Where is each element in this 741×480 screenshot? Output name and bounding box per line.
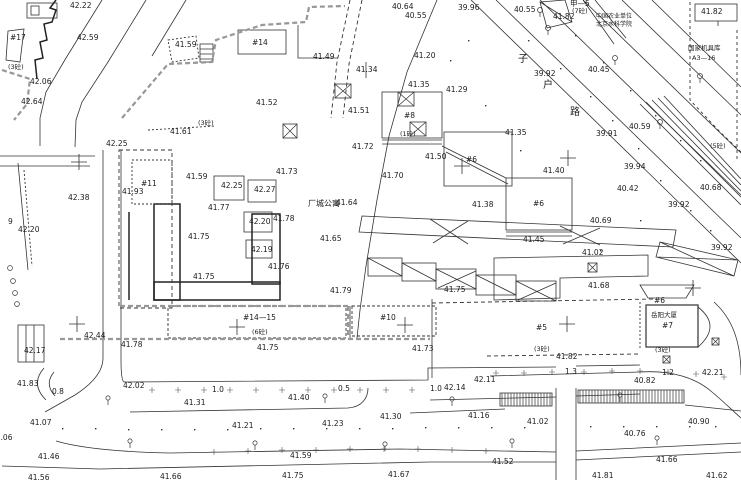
spot-elevation: 41.76 [268, 263, 289, 271]
point-dot-icon [590, 426, 591, 427]
spot-elevation: 41.66 [160, 473, 181, 480]
storey-note: (1砼) [400, 131, 416, 138]
spot-elevation: 39.94 [624, 163, 645, 171]
spot-elevation: 39.96 [458, 4, 479, 12]
spot-elevation: 41.59 [186, 173, 207, 181]
spot-elevation: 39.92 [668, 201, 689, 209]
storey-note: (3砼) [198, 120, 214, 127]
place-name: 国家机具库 [688, 45, 721, 52]
road-tick-icon [581, 369, 587, 375]
point-dot-icon [689, 426, 690, 427]
point-dot-icon [425, 427, 426, 428]
point-dot-icon [392, 428, 393, 429]
culvert-icon [335, 84, 351, 98]
spot-elevation: 41.75 [257, 344, 278, 352]
place-name: 北京水科学院 [596, 22, 632, 28]
spot-elevation: 41.34 [356, 66, 377, 74]
road-width: 1.3 [565, 368, 577, 376]
point-dot-icon [520, 150, 521, 151]
spot-elevation: 41.40 [288, 394, 309, 402]
place-name: 厂城公寓 [308, 200, 340, 208]
lamp-icon [106, 396, 110, 400]
point-dot-icon [590, 96, 591, 97]
road-tick-icon [357, 387, 363, 393]
survey-cross-icon [685, 280, 701, 296]
point-dot-icon [638, 148, 639, 149]
spot-elevation: 41.31 [184, 399, 205, 407]
storey-note: (3砼) [655, 347, 671, 354]
survey-cross-icon [397, 317, 413, 333]
road-tick-icon [449, 447, 455, 453]
spot-elevation: 41.73 [276, 168, 297, 176]
spot-elevation: 42.19 [251, 246, 272, 254]
building-number: #5 [536, 324, 547, 332]
point-dot-icon [293, 428, 294, 429]
spot-elevation: 41.46 [38, 453, 59, 461]
spot-elevation: 41.75 [282, 472, 303, 480]
building-number: #6 [654, 297, 665, 305]
road-tick-icon [279, 447, 285, 453]
spot-elevation: 41.72 [352, 143, 373, 151]
spot-elevation: 41.75 [444, 286, 465, 294]
spot-elevation: 41.83 [17, 380, 38, 388]
spot-elevation: 41.79 [330, 287, 351, 295]
road-tick-icon [381, 446, 387, 452]
compound-walls [2, 6, 430, 339]
fence-post-icon [15, 302, 20, 307]
road-tick-icon [693, 371, 699, 377]
spot-elevation: 42.64 [21, 98, 42, 106]
point-dot-icon [194, 429, 195, 430]
point-dot-icon [623, 426, 624, 427]
spot-elevation: 42.02 [123, 382, 144, 390]
point-dot-icon [630, 90, 631, 91]
spot-elevation: 41.35 [408, 81, 429, 89]
hatched-structures [500, 390, 684, 406]
spot-elevation: 41.06 [0, 434, 12, 442]
point-dot-icon [715, 426, 716, 427]
spot-elevation: 42.20 [249, 218, 270, 226]
storey-note: (7砼) [572, 8, 588, 15]
building-number: #14—15 [243, 314, 276, 322]
spot-elevation: 42.27 [254, 186, 275, 194]
road-tick-icon [279, 387, 285, 393]
lamp-icon [323, 394, 327, 398]
building-number: #8 [404, 112, 415, 120]
building-number: #11 [141, 180, 157, 188]
spot-elevation: 41.93 [122, 188, 143, 196]
road-tick-icon [211, 449, 217, 455]
road-tick-icon [313, 447, 319, 453]
spot-elevation: 41.56 [28, 474, 49, 480]
road-width: 1.0 [212, 386, 224, 394]
road-name-char: 路 [570, 108, 580, 118]
building-number: #17 [10, 34, 26, 42]
spot-elevation: 40.55 [405, 12, 426, 20]
culvert-icon [398, 92, 414, 106]
point-dot-icon [524, 427, 525, 428]
spot-elevation: 39.92 [534, 70, 555, 78]
spot-elevation: 40.55 [514, 6, 535, 14]
lamp-icon [128, 439, 132, 443]
spot-elevation: 41.51 [348, 107, 369, 115]
fence-post-icon [8, 266, 13, 271]
spot-elevation: 41.20 [414, 52, 435, 60]
survey-cross-icon [560, 150, 576, 166]
spot-elevation: 41.21 [232, 422, 253, 430]
spot-elevation: 42.22 [70, 2, 91, 10]
tree-icon [698, 74, 703, 79]
spot-elevation: 41.75 [193, 273, 214, 281]
spot-elevation: 41.29 [446, 86, 467, 94]
building-number: #10 [380, 314, 396, 322]
road-name-char: 子 [518, 55, 528, 65]
road-width: 1.2 [662, 369, 674, 377]
spot-elevation: 42.06 [30, 78, 51, 86]
spot-elevation: 41.35 [505, 129, 526, 137]
spot-elevation: 41.77 [208, 204, 229, 212]
point-dot-icon [612, 120, 613, 121]
spot-elevation: 41.38 [472, 201, 493, 209]
place-name: 中国农业单位 [596, 14, 632, 20]
road-tick-icon [637, 368, 643, 374]
point-dot-icon [227, 429, 228, 430]
spot-elevation: 41.78 [273, 215, 294, 223]
point-dot-icon [680, 140, 681, 141]
spot-elevation: 40.42 [617, 185, 638, 193]
spot-elevation: 41.65 [320, 235, 341, 243]
point-dot-icon [656, 426, 657, 427]
spot-elevation: 39.91 [596, 130, 617, 138]
place-name: A3—16 [692, 55, 715, 62]
spot-elevation: 40.69 [590, 217, 611, 225]
map-symbols [8, 8, 727, 456]
lamp-icon [450, 397, 454, 401]
spot-elevation: 41.68 [588, 282, 609, 290]
spot-elevation: 42.44 [84, 332, 105, 340]
point-dot-icon [655, 115, 656, 116]
spot-elevation: 40.45 [588, 66, 609, 74]
spot-elevation: 41.23 [322, 420, 343, 428]
spot-elevation: 41.07 [30, 419, 51, 427]
survey-cross-icon [559, 316, 575, 332]
point-dot-icon [450, 60, 451, 61]
road-width: 1.0 [430, 385, 442, 393]
road-width: 0.8 [52, 388, 64, 396]
spot-elevation: 42.38 [68, 194, 89, 202]
tree-icon [613, 56, 618, 61]
spot-elevation: 41.16 [468, 412, 489, 420]
spot-elevation: 42.11 [474, 376, 495, 384]
spot-elevation: 41.02 [582, 249, 603, 257]
storey-note: (5砼) [710, 143, 726, 150]
road-tick-icon [331, 387, 337, 393]
point-dot-icon [603, 62, 604, 63]
spot-elevation: 41.52 [256, 99, 277, 107]
spot-elevation: 42.20 [18, 226, 39, 234]
point-dot-icon [491, 427, 492, 428]
point-dot-icon [468, 40, 469, 41]
spot-elevation: 41.78 [121, 341, 142, 349]
point-dot-icon [326, 428, 327, 429]
map-canvas: 42.2240.6440.5539.9640.5541.8241.8242.59… [0, 0, 741, 480]
spot-elevation: 42.59 [77, 34, 98, 42]
culvert-icon [588, 263, 597, 272]
point-dot-icon [700, 160, 701, 161]
point-dot-icon [485, 105, 486, 106]
point-dot-icon [560, 68, 561, 69]
building-number: #14 [252, 39, 268, 47]
spot-elevation: 41.52 [492, 458, 513, 466]
spot-elevation: 41.82 [556, 353, 577, 361]
spot-elevation: 39.92 [711, 244, 732, 252]
point-dot-icon [710, 230, 711, 231]
storey-note: (3砼) [8, 64, 24, 71]
fence-post-icon [11, 279, 16, 284]
road-tick-icon [149, 387, 155, 393]
point-dot-icon [458, 427, 459, 428]
spot-elevation: 41.49 [313, 53, 334, 61]
spot-elevation: 42.25 [221, 182, 242, 190]
point-dot-icon [575, 35, 576, 36]
spot-elevation: 41.59 [290, 452, 311, 460]
spot-elevation: 41.61 [170, 128, 191, 136]
road-tick-icon [483, 448, 489, 454]
fence-post-icon [13, 291, 18, 296]
point-dot-icon [62, 428, 63, 429]
spot-elevation: 40.68 [700, 184, 721, 192]
misc-label: 9 [8, 218, 13, 226]
point-dot-icon [161, 429, 162, 430]
lamp-icon [383, 442, 387, 446]
spot-elevation: 41.73 [412, 345, 433, 353]
spot-elevation: 41.62 [706, 472, 727, 480]
spot-elevation: 40.90 [688, 418, 709, 426]
culvert-icon [283, 124, 297, 138]
spot-elevation: 40.82 [634, 377, 655, 385]
spot-elevation: 42.21 [702, 369, 723, 377]
road-tick-icon [201, 387, 207, 393]
road-tick-icon [347, 446, 353, 452]
culvert-icon [712, 338, 719, 345]
road-tick-icon [253, 387, 259, 393]
spot-elevation: 41.30 [380, 413, 401, 421]
culvert-icon [663, 356, 670, 363]
point-dot-icon [260, 428, 261, 429]
lamp-icon [253, 441, 257, 445]
lamp-icon [510, 439, 514, 443]
spot-elevation: 41.45 [523, 236, 544, 244]
point-dot-icon [359, 428, 360, 429]
point-dot-icon [660, 180, 661, 181]
point-dot-icon [640, 220, 641, 221]
point-dot-icon [690, 210, 691, 211]
spot-elevation: 41.40 [543, 167, 564, 175]
spot-elevation: 41.02 [527, 418, 548, 426]
storey-note: (6砼) [252, 329, 268, 336]
spot-elevation: 40.59 [629, 123, 650, 131]
spot-elevation: 42.17 [24, 347, 45, 355]
spot-elevation: 40.64 [392, 3, 413, 11]
road-name-char: 户 [543, 81, 553, 91]
building-number: #7 [662, 322, 673, 330]
spot-elevation: 42.25 [106, 140, 127, 148]
road-tick-icon [415, 446, 421, 452]
road-tick-icon [227, 387, 233, 393]
place-name: 岳阳大厦 [651, 312, 677, 319]
road-tick-icon [409, 387, 415, 393]
spot-elevation: 41.50 [425, 153, 446, 161]
spot-elevation: 41.66 [656, 456, 677, 464]
spot-elevation: 41.82 [701, 8, 722, 16]
building-number: #6 [466, 156, 477, 164]
storey-note: (3砼) [534, 346, 550, 353]
survey-cross-icon [69, 316, 85, 332]
road-tick-icon [383, 387, 389, 393]
lamp-icon [655, 436, 659, 440]
spot-elevation: 41.75 [188, 233, 209, 241]
point-dot-icon [95, 428, 96, 429]
point-dot-icon [128, 429, 129, 430]
road-width: 0.5 [338, 385, 350, 393]
road-tick-icon [245, 448, 251, 454]
spot-elevation: 40.76 [624, 430, 645, 438]
road-tick-icon [175, 387, 181, 393]
spot-elevation: 41.81 [592, 472, 613, 480]
spot-elevation: 41.67 [388, 471, 409, 479]
spot-elevation: 42.14 [444, 384, 465, 392]
point-dot-icon [528, 40, 529, 41]
spot-elevation: 41.59 [175, 41, 196, 49]
spot-elevation: 41.70 [382, 172, 403, 180]
building-number: #6 [533, 200, 544, 208]
